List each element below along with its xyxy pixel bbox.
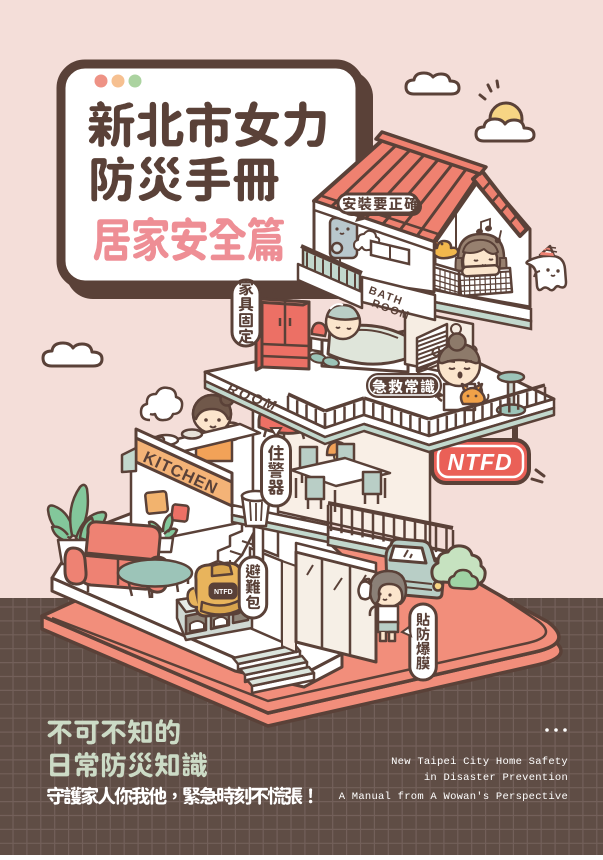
svg-text:NTFD: NTFD xyxy=(447,449,512,475)
svg-text:in Disaster Prevention: in Disaster Prevention xyxy=(424,772,568,784)
svg-text:NTFD: NTFD xyxy=(214,589,233,596)
svg-text:New Taipei City Home Safety: New Taipei City Home Safety xyxy=(391,756,568,768)
svg-text:A Manual from A Wowan's Perspe: A Manual from A Wowan's Perspective xyxy=(339,791,568,803)
